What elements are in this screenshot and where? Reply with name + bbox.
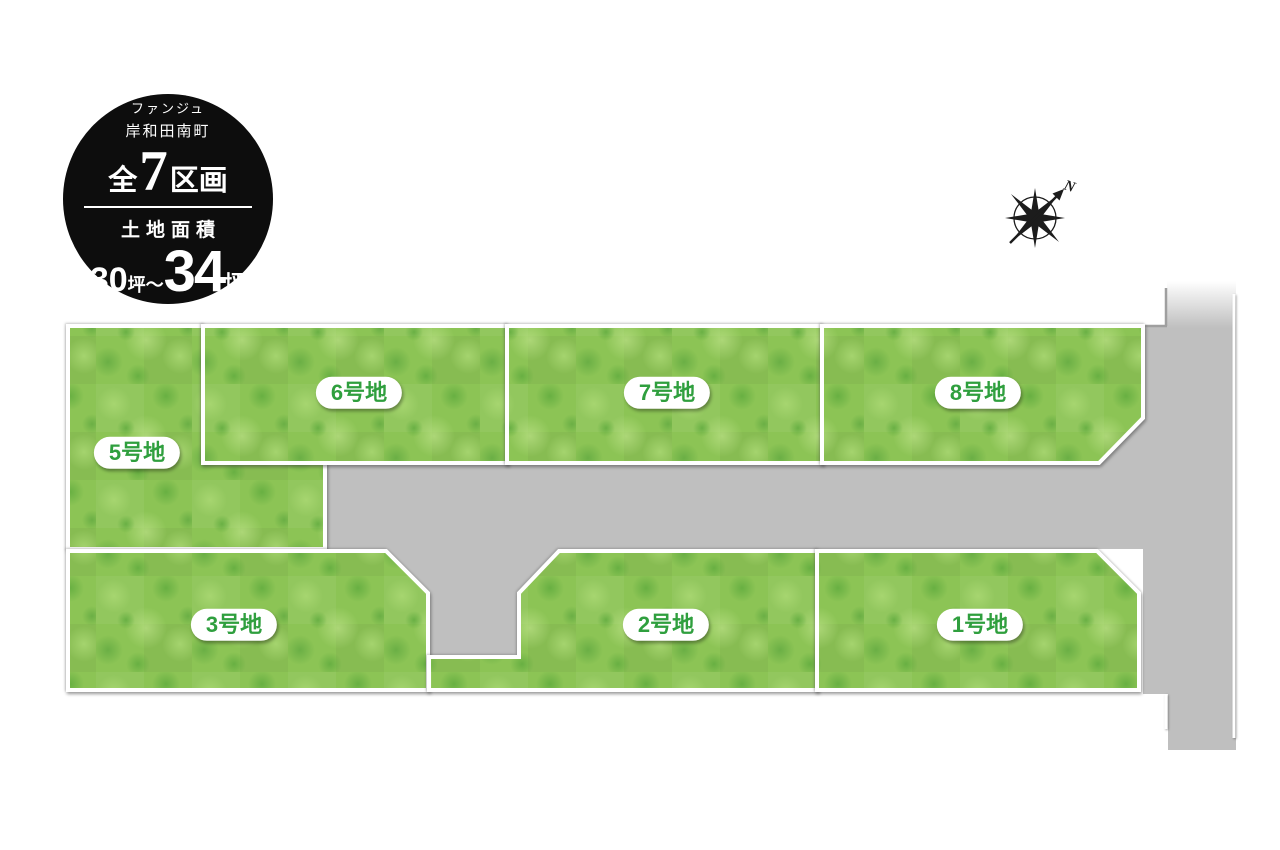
badge-divider [84,206,252,208]
lot-5-label: 5号地 [94,437,180,469]
brand-name: ファンジュ [131,98,205,117]
site-badge: ファンジュ 岸和田南町 全7区画 土地面積 30坪〜34坪 [63,94,273,304]
site-plan-canvas: 5号地 6号地 7号地 8号地 3号地 2号地 1号地 ファンジュ 岸和田南町 … [0,0,1280,850]
lot-3-label: 3号地 [191,609,277,641]
lot-8-label: 8号地 [935,377,1021,409]
total-lots-count: 7 [137,140,170,203]
area-min-unit: 坪 [128,275,146,295]
lot-2-label: 2号地 [623,609,709,641]
area-tilde: 〜 [146,275,164,295]
lot-6-label: 6号地 [316,377,402,409]
road-right-vertical [1143,327,1236,750]
total-lots: 全7区画 [108,143,228,200]
compass-rose-icon: N [985,168,1085,268]
lot-1-label: 1号地 [937,609,1023,641]
total-lots-prefix: 全 [108,165,137,197]
road-main-horizontal [327,465,1236,549]
lot-7-label: 7号地 [624,377,710,409]
north-label: N [1061,177,1078,196]
road-top-fade [1167,281,1236,328]
area-max: 34 [164,239,225,304]
area-title: 土地面積 [115,215,221,242]
brand-location: 岸和田南町 [125,120,210,141]
area-min: 30 [90,261,128,299]
area-max-unit: 坪 [224,271,246,296]
total-lots-suffix: 区画 [170,165,228,197]
area-range: 30坪〜34坪 [90,243,246,301]
